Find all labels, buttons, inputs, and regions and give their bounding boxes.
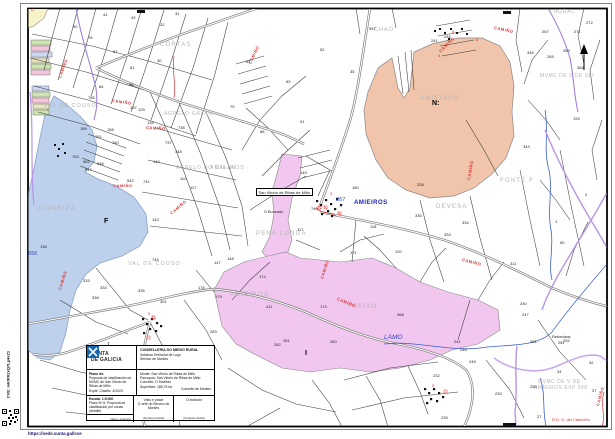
scale-cell: Escala: 1:5.000 Plano Nº 6: Proposta de … <box>87 396 134 422</box>
title-block-header: XUNTA DE GALICIA CONSELLERÍA DO MEDIO RU… <box>87 346 214 370</box>
cve-code-vertical: CVE: mK9tR2xQ7Lp4sZ1 <box>6 345 11 405</box>
qr-code <box>2 409 19 426</box>
salmon-zone <box>364 38 514 198</box>
title-block: XUNTA DE GALICIA CONSELLERÍA DO MEDIO RU… <box>86 345 215 421</box>
yellow-parcel <box>28 8 48 28</box>
verification-url: https://sede.xunta.gal/cve <box>28 431 82 436</box>
monte-details: Monte: San Vitorio de Ribas de Miño Parr… <box>137 370 214 395</box>
consello-note: Consello de Montes <box>181 387 211 391</box>
signature-cell-instrutor: O instrutor (Sinatura dixital) <box>174 396 214 422</box>
pink-zone-blob <box>214 252 500 372</box>
north-arrow <box>580 44 588 70</box>
signature-cell-visto: Visto e prace O xefe do Servizo de Monte… <box>134 396 174 422</box>
department-name: CONSELLERÍA DO MEDIO RURAL Xefatura Terr… <box>137 346 214 369</box>
plan-description: Plano de: Proposta de clasificación do M… <box>87 370 137 395</box>
map-sheet: San Vitorio de Ribas de Miño CORTASVAL D… <box>0 0 615 439</box>
plan-number: Plano Nº 6: Proposta de clasificación po… <box>89 401 125 413</box>
